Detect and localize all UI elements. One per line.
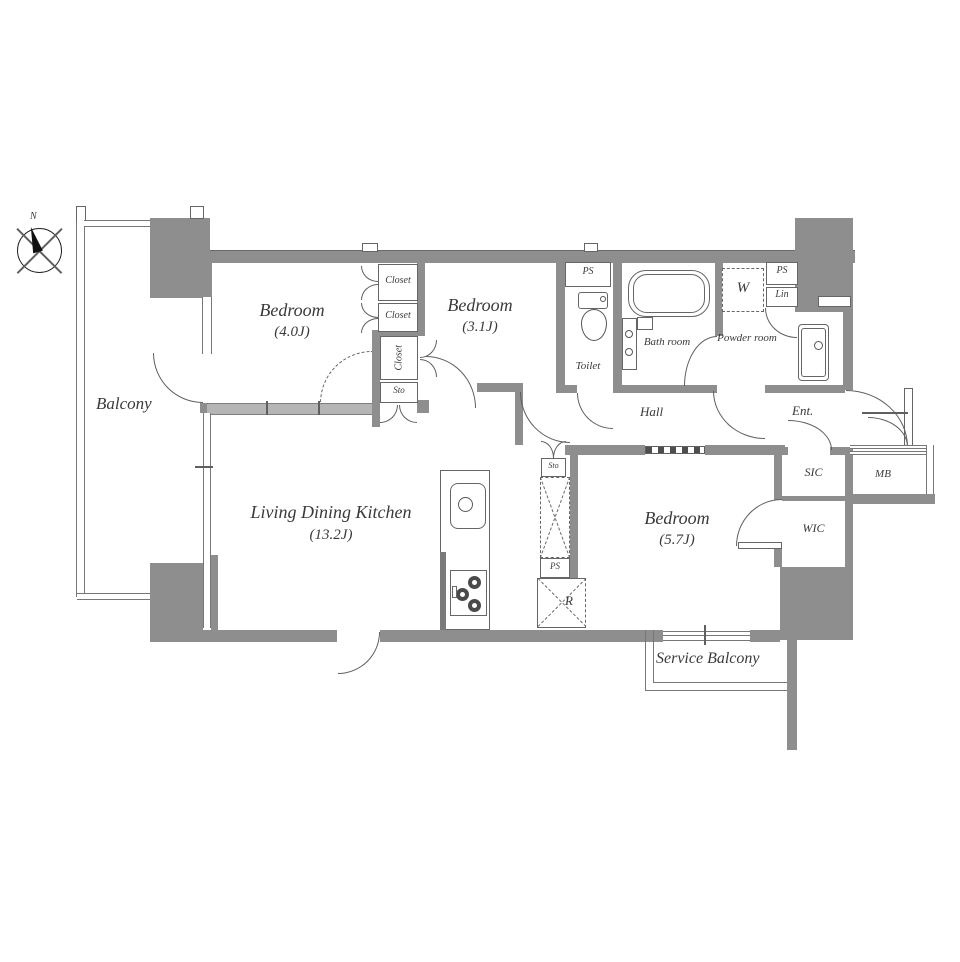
partition-tick <box>318 401 320 415</box>
window-tick <box>195 466 213 468</box>
entrance-door-leaf <box>862 412 908 414</box>
bottom-wall <box>150 630 337 642</box>
washer-label: W <box>722 280 764 297</box>
service-window-mid-line <box>663 635 750 636</box>
powder-bottom-wall <box>765 385 845 393</box>
toilet-bath-wall <box>613 262 622 393</box>
bedroom3-size: (5.7J) <box>592 532 762 549</box>
ldk-left-wall <box>211 555 218 632</box>
toilet-label: Toilet <box>563 360 613 373</box>
bedroom3-name: Bedroom <box>592 508 762 529</box>
entrance-door-arc-inner <box>868 417 908 447</box>
wall-vent-tab <box>190 206 204 219</box>
balcony-bottom-railing <box>77 593 150 600</box>
top-wall <box>210 250 855 263</box>
powder-door-arc <box>713 391 765 439</box>
powder-ps-label: PS <box>766 265 798 277</box>
compass-north-label: N <box>30 211 37 223</box>
bedroom2-size: (3.1J) <box>405 319 555 336</box>
mb-bottom-wall <box>846 494 935 504</box>
bedroom1-door-swing-dashed <box>320 351 372 403</box>
hall-storage-label: Sto <box>541 461 566 470</box>
balcony-top-railing <box>84 220 151 227</box>
pillar-bottom-left <box>150 563 203 632</box>
service-balcony-rail <box>653 682 788 683</box>
powder-label: Powder room <box>716 332 778 345</box>
stove-burner-icon <box>456 588 469 601</box>
service-balcony-window <box>663 631 750 641</box>
closet-c-label: Closet <box>393 339 405 377</box>
partition-tick <box>266 401 268 415</box>
ldk-hall-door-arc <box>520 392 570 443</box>
fridge-label: R <box>565 594 573 609</box>
stove-knob <box>452 586 457 598</box>
bath-step <box>637 317 653 330</box>
wall-vent-tab <box>362 243 378 252</box>
sic-left-wall <box>774 447 782 500</box>
ldk-name: Living Dining Kitchen <box>216 502 446 523</box>
wall-vent-tab <box>584 243 598 252</box>
right-wall-lower <box>845 447 853 567</box>
closet-a-label: Closet <box>378 275 418 287</box>
toilet-button <box>600 296 606 302</box>
service-balcony-right-wall <box>787 640 797 750</box>
bath-bottom-wall <box>613 385 717 393</box>
closet-a-door-arc <box>361 266 378 282</box>
bottom-wall <box>750 630 780 642</box>
service-balcony-rail <box>645 690 788 691</box>
mb-top-line <box>850 445 934 449</box>
hall-storage-door-arc <box>541 441 554 458</box>
bedroom3-sliding-door <box>645 446 705 454</box>
stove-burner-icon <box>468 599 481 612</box>
bath-faucet-icon <box>625 348 633 356</box>
balcony-left-railing <box>76 221 85 597</box>
bath-label: Bath room <box>638 336 696 349</box>
pillar-top-left <box>150 218 210 298</box>
hall-bottom-wall <box>705 445 785 455</box>
hall-label: Hall <box>640 405 663 420</box>
ldk-balcony-window <box>203 413 211 628</box>
kitchen-ps-label: PS <box>540 561 570 571</box>
service-balcony-rail <box>645 630 646 690</box>
hall-storage-door-arc <box>553 441 566 458</box>
entrance-label: Ent. <box>792 404 813 419</box>
toilet-bowl <box>581 309 607 341</box>
bedroom1-left-wall <box>202 262 212 298</box>
toilet-ps-label: PS <box>565 266 611 278</box>
closet-left-wall <box>372 336 380 427</box>
corner-block-bottom-right <box>780 567 853 640</box>
storage-door-arc <box>380 405 398 423</box>
storage-door-arc <box>399 405 417 423</box>
toilet-door-arc <box>577 393 613 429</box>
balcony-label: Balcony <box>96 394 152 414</box>
bath-faucet-icon <box>625 330 633 338</box>
stove-burner-icon <box>468 576 481 589</box>
closet-a-door-arc <box>361 284 378 300</box>
storage-label: Sto <box>380 385 418 395</box>
kitchen-counter-edge <box>440 552 446 630</box>
bedroom1-balcony-window <box>202 297 212 354</box>
bottom-wall <box>380 630 578 642</box>
bathtub-inner <box>633 274 705 313</box>
sic-wic-divider <box>782 496 845 501</box>
vanity-basin <box>801 328 826 377</box>
vanity-drain <box>814 341 823 350</box>
right-wall-upper <box>843 310 853 390</box>
wic-left-wall <box>774 548 782 567</box>
bath-counter <box>622 318 637 370</box>
service-balcony-label: Service Balcony <box>656 650 760 668</box>
floor-plan: N Balcony Closet Closet Closet Sto <box>0 0 960 962</box>
bedroom2-door-arc <box>426 356 476 408</box>
window-tick <box>704 625 706 645</box>
bedroom3-left-wall <box>570 445 578 578</box>
mb-label: MB <box>853 468 913 481</box>
sic-label: SIC <box>782 466 845 480</box>
mb-top-line <box>850 451 934 455</box>
kitchen-sink-drain <box>458 497 473 512</box>
bedroom1-size: (4.0J) <box>212 324 372 341</box>
bottom-wall <box>578 630 663 642</box>
linen-label: Lin <box>766 289 798 301</box>
bedroom1-balcony-door-arc <box>153 353 203 403</box>
ldk-size: (13.2J) <box>216 527 446 544</box>
bedroom2-name: Bedroom <box>405 295 555 316</box>
wic-label: WIC <box>782 522 845 536</box>
service-balcony-rail <box>653 630 654 682</box>
bedroom1-ldk-partition <box>207 403 373 415</box>
powder-room-window <box>818 296 851 307</box>
bedroom1-name: Bedroom <box>212 300 372 321</box>
ldk-exterior-door-arc <box>338 632 380 674</box>
sic-door-arc <box>788 420 832 450</box>
